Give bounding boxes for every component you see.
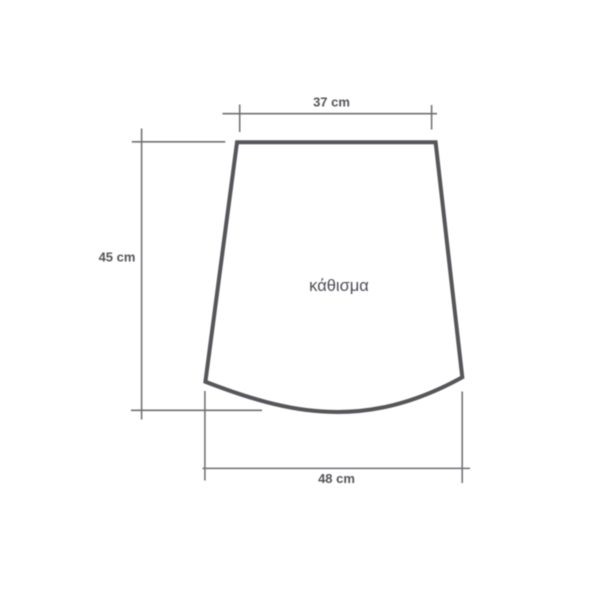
svg-text:48 cm: 48 cm <box>318 471 355 486</box>
svg-text:κάθισμα: κάθισμα <box>309 277 369 295</box>
svg-text:45 cm: 45 cm <box>99 250 136 265</box>
svg-text:37 cm: 37 cm <box>313 95 350 110</box>
